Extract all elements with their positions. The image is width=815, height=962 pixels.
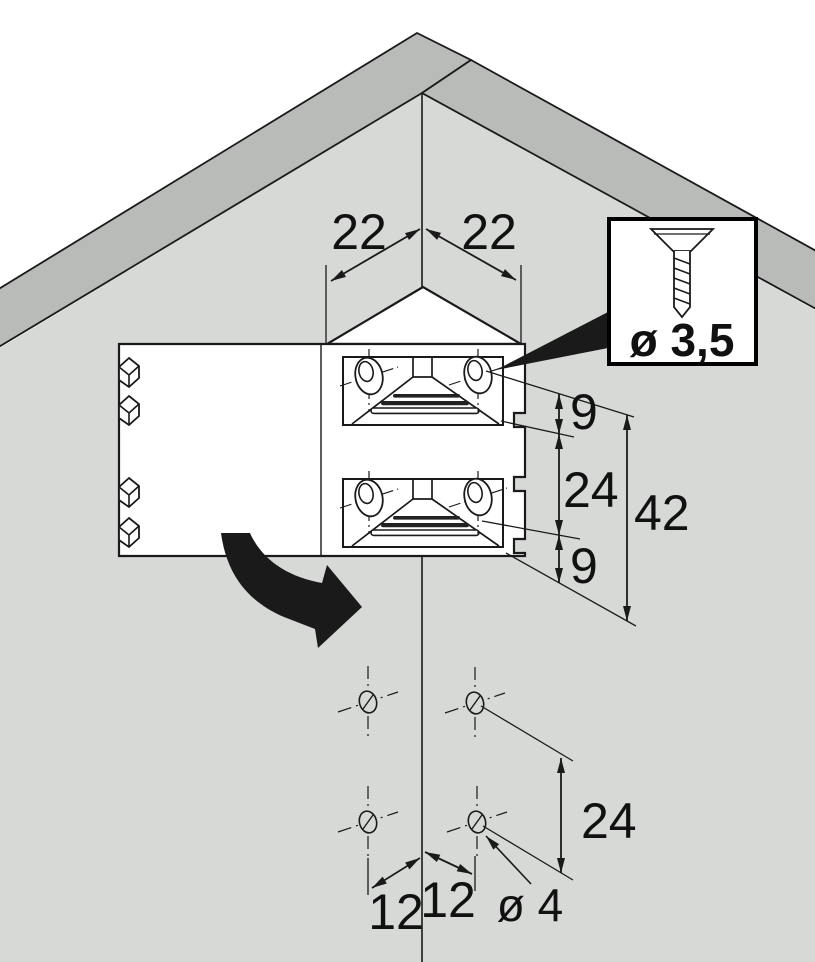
technical-drawing-page: 22 22 9 24 9 42 <box>0 0 815 962</box>
dim-label-22-left: 22 <box>331 204 387 260</box>
screw-diameter-label: ø 3,5 <box>630 314 735 366</box>
corner-connector-diagram: 22 22 9 24 9 42 <box>0 0 815 962</box>
dim-label-12-left: 12 <box>368 884 424 940</box>
dim-label-24-right: 24 <box>563 462 619 518</box>
dim-label-22-right: 22 <box>461 204 517 260</box>
dim-label-9-lower: 9 <box>570 538 598 594</box>
dim-label-9-upper: 9 <box>570 384 598 440</box>
dim-label-12-right: 12 <box>420 872 476 928</box>
screw-detail-inset: ø 3,5 <box>609 219 756 366</box>
connector-plate <box>119 344 525 556</box>
bracket-upper <box>340 349 507 425</box>
dim-label-42: 42 <box>634 485 690 541</box>
dim-label-hole-diameter: ø 4 <box>497 879 563 931</box>
bracket-lower <box>340 471 507 547</box>
dim-label-24-bottom: 24 <box>581 793 637 849</box>
